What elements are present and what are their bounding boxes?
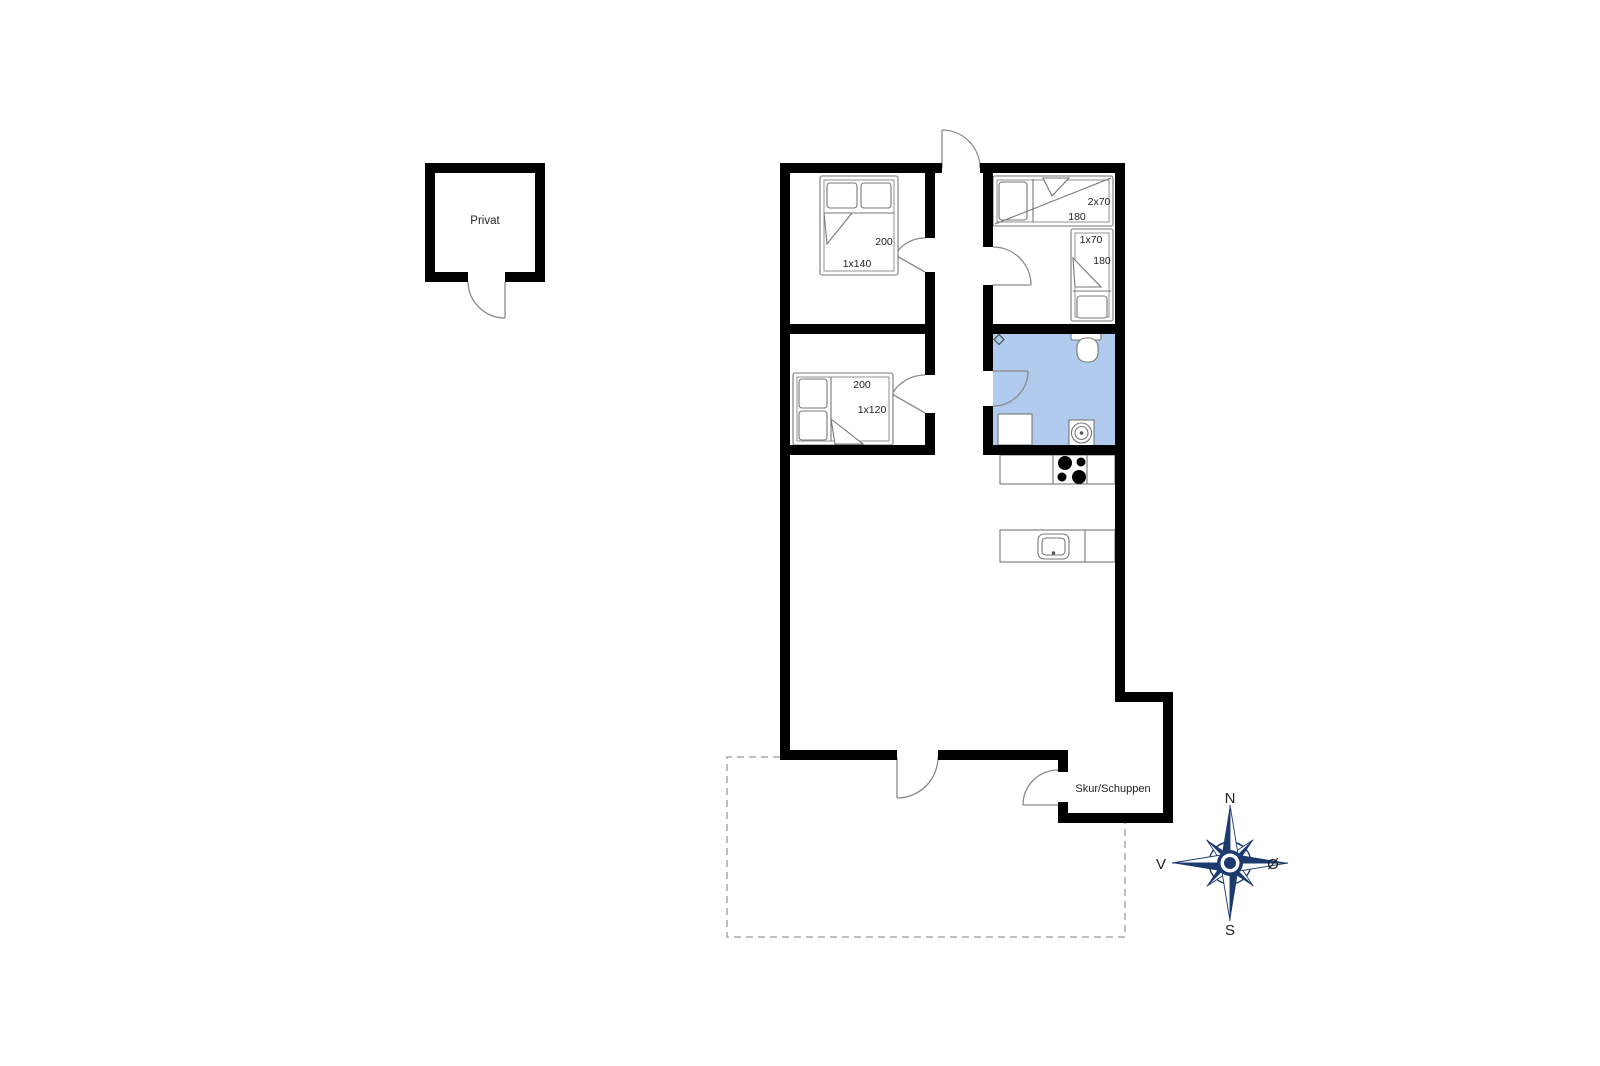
kitchen bbox=[1000, 455, 1115, 562]
doors bbox=[468, 130, 1058, 805]
walls bbox=[425, 163, 1173, 823]
toilet-bowl bbox=[1077, 338, 1098, 362]
pillow bbox=[1077, 296, 1107, 318]
washbasin-drain bbox=[1080, 431, 1084, 435]
wall-segment bbox=[1163, 692, 1173, 823]
wall-segment bbox=[425, 272, 468, 282]
wall-segment bbox=[983, 285, 993, 371]
shower-tray bbox=[998, 414, 1032, 445]
shed-room-label: Skur/Schuppen bbox=[1075, 783, 1150, 795]
compass-label-east: Ø bbox=[1267, 856, 1279, 873]
wall-segment bbox=[505, 272, 545, 282]
wall-segment bbox=[425, 163, 545, 173]
kitchen-counter bbox=[1000, 455, 1115, 484]
wall-segment bbox=[1058, 813, 1173, 823]
shed-door-swing bbox=[1023, 770, 1058, 805]
wall-segment bbox=[780, 750, 897, 760]
wall-segment bbox=[535, 163, 545, 282]
wall-segment bbox=[425, 163, 435, 282]
compass-label-north: N bbox=[1225, 790, 1236, 807]
bunk-size-label: 2x70 bbox=[1088, 196, 1111, 208]
compass-label-west: V bbox=[1156, 856, 1166, 873]
wall-segment bbox=[925, 272, 935, 375]
bed3-size-label: 1x120 bbox=[858, 404, 887, 416]
compass-label-south: S bbox=[1225, 922, 1235, 939]
sink-drain bbox=[1052, 551, 1055, 554]
stove-burner bbox=[1058, 473, 1067, 482]
entrance-door-swing bbox=[942, 130, 980, 168]
wall-segment bbox=[780, 163, 942, 173]
floorplan-page: Privat Skur/Schuppen 200 1x140 2x70 180 … bbox=[0, 0, 1600, 1066]
living-room-door-swing bbox=[897, 757, 938, 798]
wall-segment bbox=[983, 173, 993, 247]
bed3-length-label: 200 bbox=[853, 379, 871, 391]
bedroom1-door-swing bbox=[895, 238, 925, 272]
pillow bbox=[999, 182, 1027, 220]
single-bed-size-label: 1x70 bbox=[1080, 234, 1103, 246]
wall-segment bbox=[1115, 163, 1125, 702]
stove-burner bbox=[1072, 470, 1086, 484]
pillow bbox=[799, 411, 827, 440]
pillow bbox=[827, 183, 857, 208]
bunk-length-label: 180 bbox=[1068, 211, 1086, 223]
wall-segment bbox=[790, 324, 925, 334]
pillow bbox=[799, 379, 827, 408]
wall-segment bbox=[1058, 760, 1068, 772]
stove-burner bbox=[1058, 456, 1072, 470]
stove-burner bbox=[1077, 458, 1086, 467]
wall-segment bbox=[1058, 802, 1068, 813]
wall-segment bbox=[790, 445, 935, 455]
wall-segment bbox=[780, 163, 790, 760]
bed1-length-label: 200 bbox=[875, 236, 893, 248]
wall-segment bbox=[993, 324, 1115, 334]
wall-segment bbox=[983, 445, 1125, 455]
single-bed-length-label: 180 bbox=[1093, 255, 1111, 267]
terrace-dashed-outline bbox=[727, 757, 1125, 937]
pillow bbox=[861, 183, 891, 208]
bed1-size-label: 1x140 bbox=[843, 258, 872, 270]
wall-segment bbox=[925, 173, 935, 238]
privat-door-swing bbox=[468, 282, 505, 318]
wall-segment bbox=[980, 163, 1125, 173]
bedroom2-door-swing bbox=[993, 247, 1031, 285]
bedroom3-door-swing bbox=[892, 375, 925, 413]
floorplan-drawing: Privat Skur/Schuppen 200 1x140 2x70 180 … bbox=[0, 0, 1600, 1066]
privat-room-label: Privat bbox=[470, 215, 500, 227]
wall-segment bbox=[938, 750, 1068, 760]
